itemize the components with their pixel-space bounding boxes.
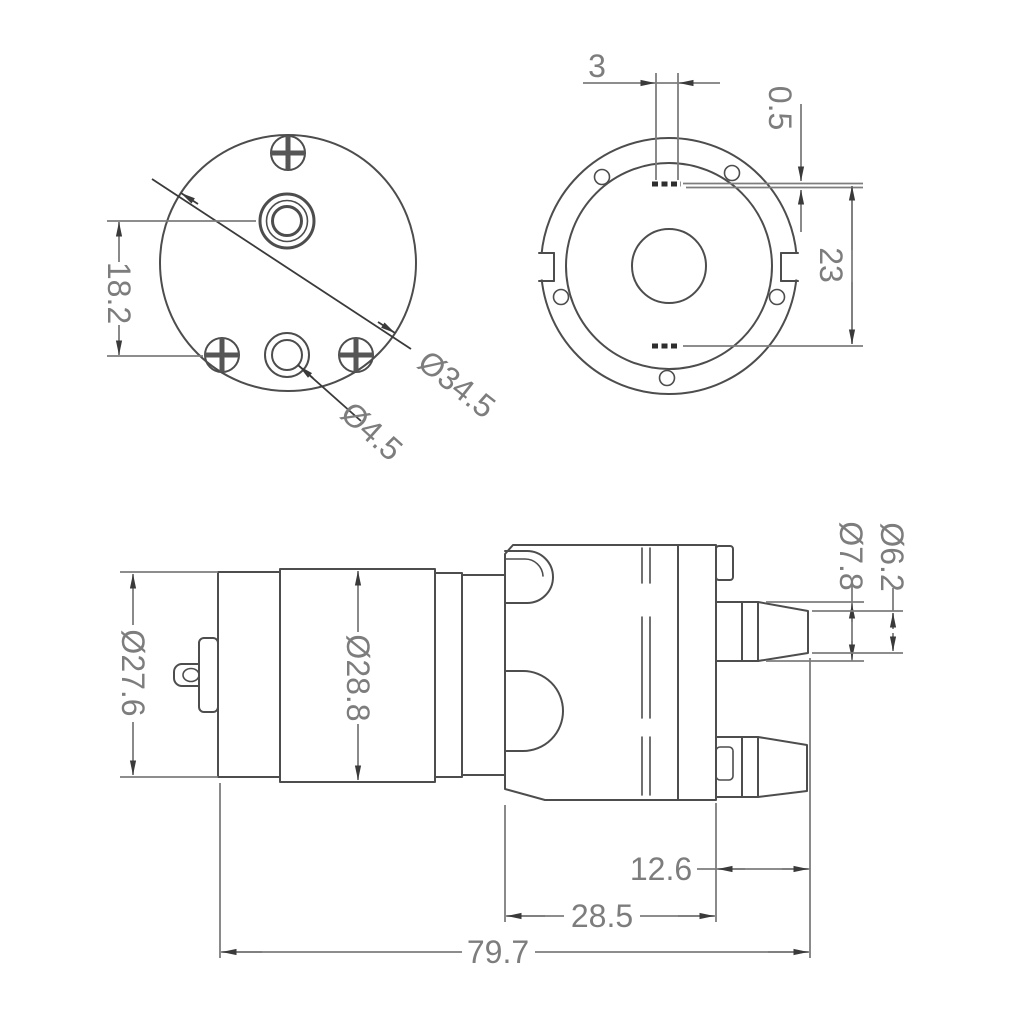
dim-port-spacing: 18.2 (101, 221, 256, 356)
hose-barb-upper (716, 602, 808, 661)
rear-flange-view: 3 0.5 23 (535, 48, 863, 394)
flange-outline (541, 138, 797, 394)
dim-nozzle-length: 12.6 (630, 851, 810, 887)
dim-label-nozzle-length: 12.6 (630, 851, 692, 887)
dim-port-diameter: Ø4.5 (298, 365, 410, 468)
motor-end-cap (218, 572, 280, 777)
hose-barb-lower (716, 737, 807, 797)
dim-label-slot-spacing: 23 (813, 247, 849, 283)
dim-label-nozzle-base-diameter: Ø7.8 (833, 521, 869, 590)
dim-label-motor-body-diameter: Ø28.8 (340, 634, 376, 721)
dim-label-motor-cap-diameter: Ø27.6 (115, 629, 151, 716)
flange-inner-ring (566, 163, 772, 369)
dim-label-nozzle-tip-diameter: Ø6.2 (874, 522, 910, 591)
center-hole (632, 229, 706, 303)
pump-mount-ring (462, 575, 505, 775)
flange-notch-right (781, 253, 802, 281)
phillips-screw-bottom-left (205, 338, 239, 372)
head-lug-top (716, 546, 733, 580)
dim-label-port-diameter: Ø4.5 (334, 395, 410, 468)
dim-label-overall-length: 79.7 (467, 934, 529, 970)
dim-slot-width: 3 (583, 48, 720, 180)
front-face-view: Ø34.5 Ø4.5 18.2 (101, 135, 503, 468)
motor-front-ring (435, 573, 462, 777)
flange-notch-left (535, 253, 554, 281)
lower-port (265, 333, 309, 377)
technical-drawing-page: Ø34.5 Ø4.5 18.2 (0, 0, 1024, 1024)
phillips-screw-top (271, 136, 305, 170)
dim-pump-head-length: 28.5 (506, 898, 715, 934)
flange-bolt-holes (554, 166, 785, 386)
dim-overall-length: 79.7 (221, 934, 809, 970)
phillips-screw-bottom-right (339, 338, 373, 372)
technical-drawing-canvas: Ø34.5 Ø4.5 18.2 (0, 0, 1024, 1024)
front-body-outline (160, 135, 416, 391)
dim-label-port-spacing: 18.2 (101, 262, 137, 324)
dim-slot-offset: 0.5 (683, 86, 863, 232)
side-profile-view: Ø27.6 Ø28.8 Ø7.8 Ø6.2 (115, 521, 910, 970)
dim-outer-diameter: Ø34.5 (152, 179, 502, 425)
dim-label-slot-width: 3 (588, 48, 606, 84)
upper-port (260, 194, 314, 248)
dim-label-pump-head-length: 28.5 (571, 898, 633, 934)
dim-label-outer-diameter: Ø34.5 (411, 343, 502, 425)
dim-label-slot-offset: 0.5 (762, 86, 798, 130)
terminal-holder (199, 638, 218, 712)
